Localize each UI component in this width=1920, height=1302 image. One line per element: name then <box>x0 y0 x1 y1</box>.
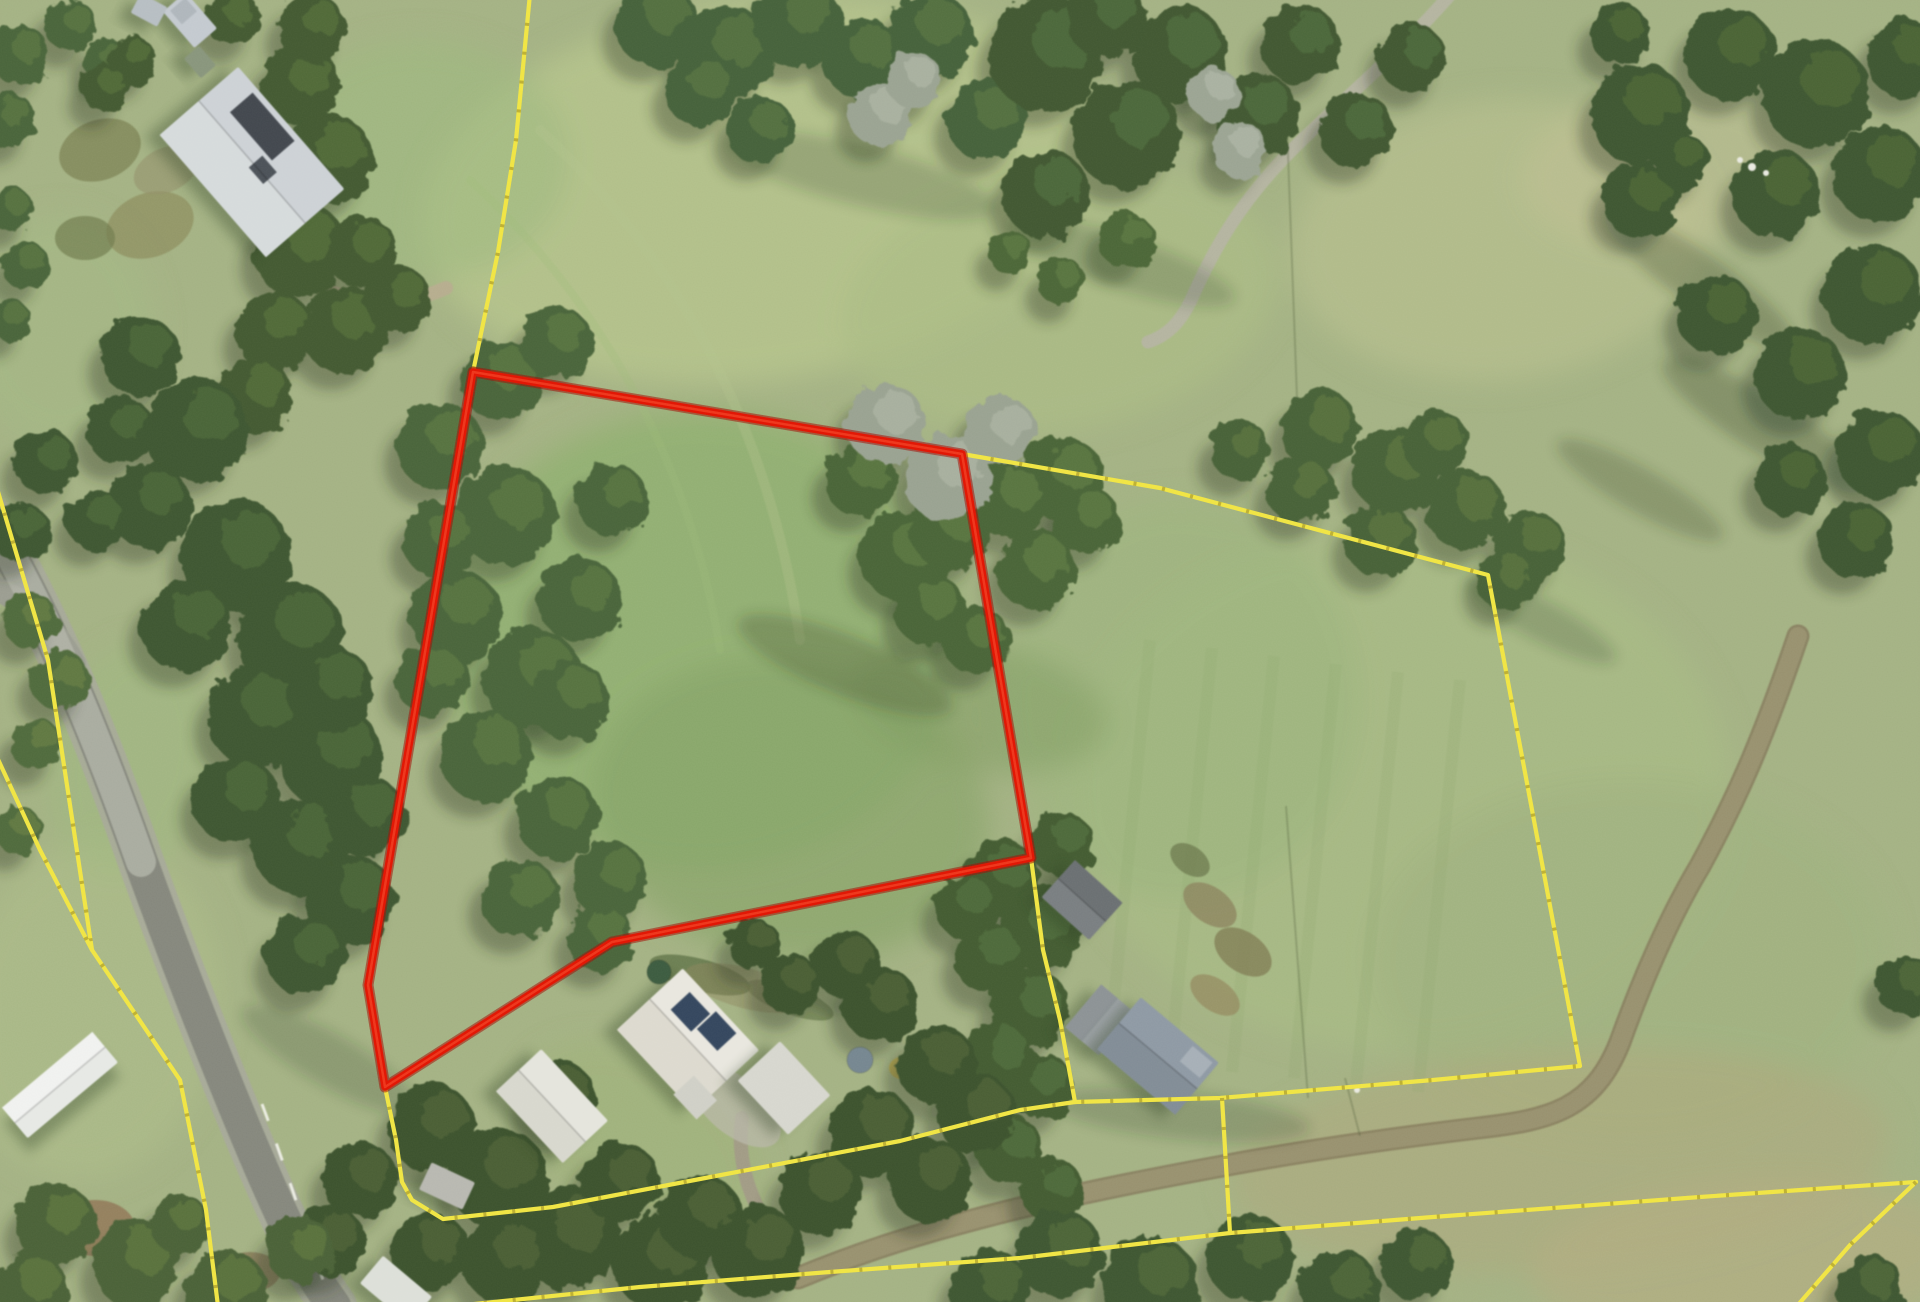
tree-canopy-lit <box>139 472 183 516</box>
white-dot <box>1748 163 1756 171</box>
tree-canopy-lit <box>782 959 813 990</box>
tree-canopy-lit <box>316 122 364 170</box>
tree-canopy-lit <box>1627 73 1679 125</box>
tree-canopy-lit <box>919 1146 963 1190</box>
tree-canopy-lit <box>1788 336 1836 384</box>
tree-canopy-lit <box>215 1258 259 1302</box>
tree-canopy-lit <box>319 654 365 700</box>
tree-canopy-lit <box>746 1214 794 1262</box>
tree-canopy-lit <box>1004 234 1027 257</box>
tree-canopy-lit <box>245 365 285 405</box>
tree-canopy-lit <box>265 299 307 341</box>
tree-canopy-lit <box>485 1137 537 1189</box>
tree-canopy-lit <box>350 1149 390 1189</box>
tree-canopy-lit <box>610 1149 652 1191</box>
tree-canopy-lit <box>1232 425 1263 456</box>
tree-canopy-lit <box>991 402 1028 439</box>
tree-canopy-lit <box>691 60 728 97</box>
tree-canopy-lit <box>182 387 236 441</box>
tree-canopy-lit <box>1498 555 1529 586</box>
tree-canopy-lit <box>751 102 786 137</box>
tree-canopy-lit <box>1330 1257 1372 1299</box>
tree-canopy-lit <box>52 655 83 686</box>
tree-canopy-lit <box>296 923 338 965</box>
tree-canopy-lit <box>276 592 332 648</box>
aerial-photo <box>0 0 1920 1302</box>
garden-patch <box>55 216 115 260</box>
tree-canopy-lit <box>1869 418 1915 464</box>
tree-canopy-lit <box>130 323 172 365</box>
tree-canopy-lit <box>876 391 918 433</box>
tree-canopy-lit <box>172 1199 203 1230</box>
tree-canopy-lit <box>1521 516 1558 553</box>
tree-canopy-lit <box>1 97 30 126</box>
tree-canopy-lit <box>852 25 894 67</box>
tree-canopy-lit <box>126 40 151 65</box>
tree-canopy-lit <box>689 1182 733 1226</box>
tree-canopy-lit <box>600 849 640 889</box>
tree-canopy-lit <box>1859 253 1911 305</box>
tree-canopy-lit <box>1427 416 1462 451</box>
tree-canopy-lit <box>1456 477 1498 519</box>
aerial-map-view[interactable] <box>0 0 1920 1302</box>
tree-canopy-lit <box>1138 1245 1188 1295</box>
tree-canopy-lit <box>1706 281 1748 323</box>
tree-canopy-lit <box>221 510 279 568</box>
tree-canopy-lit <box>1054 818 1087 851</box>
tree-canopy-lit <box>1612 9 1643 40</box>
tree-canopy-lit <box>111 402 146 437</box>
tree-canopy-lit <box>907 57 936 86</box>
tree-canopy-lit <box>46 1191 88 1233</box>
tree-canopy-lit <box>1026 537 1068 579</box>
tree-canopy-lit <box>1000 469 1040 509</box>
tree-canopy-lit <box>1112 90 1168 146</box>
white-dot <box>1763 170 1769 176</box>
tree-canopy-lit <box>291 1222 326 1257</box>
tree-canopy-lit <box>1846 509 1886 549</box>
tree-canopy-lit <box>174 588 222 636</box>
tree-canopy-lit <box>547 784 591 828</box>
white-dot <box>1737 157 1743 163</box>
tree-canopy-lit <box>1044 1164 1077 1197</box>
tree-canopy-lit <box>1077 492 1112 527</box>
tree-canopy-lit <box>926 1031 968 1073</box>
tree-canopy-lit <box>12 30 43 61</box>
tree-canopy-lit <box>474 718 522 766</box>
tree-canopy-lit <box>1207 73 1234 100</box>
tree-canopy-lit <box>560 667 602 709</box>
tree-canopy-lit <box>1168 15 1218 65</box>
tree-canopy-lit <box>1371 510 1408 547</box>
tree-canopy-lit <box>1245 80 1289 124</box>
tree-canopy-lit <box>303 0 338 35</box>
tree-canopy-lit <box>603 470 640 507</box>
tree-canopy-lit <box>1781 450 1818 487</box>
tree-canopy-lit <box>1861 1260 1896 1295</box>
tree-canopy-lit <box>88 495 119 526</box>
gray-dome-tank <box>847 1047 873 1073</box>
tree-canopy-lit <box>1233 127 1262 156</box>
tree-canopy-lit <box>1051 444 1095 488</box>
tree-canopy-lit <box>29 723 56 750</box>
tree-canopy-lit <box>958 880 991 913</box>
photo-layers <box>0 0 1920 1302</box>
tree-canopy-lit <box>981 928 1018 965</box>
tree-canopy-lit <box>1291 462 1326 497</box>
tree-canopy-lit <box>1056 262 1081 287</box>
tree-canopy-lit <box>1049 1218 1095 1264</box>
tree-canopy-lit <box>1403 30 1438 65</box>
tree-canopy-lit <box>919 0 965 46</box>
tree-canopy-lit <box>38 436 71 469</box>
tree-canopy-lit <box>1718 16 1766 64</box>
tree-canopy-lit <box>421 1092 467 1138</box>
tree-canopy-lit <box>1802 50 1858 106</box>
tree-canopy-lit <box>493 475 545 527</box>
tree-canopy-lit <box>1290 11 1332 53</box>
tree-canopy-lit <box>6 192 29 215</box>
tree-canopy-lit <box>921 580 958 617</box>
tree-canopy-lit <box>510 865 552 907</box>
tree-canopy-lit <box>1868 135 1918 185</box>
green-water-tank <box>647 960 671 984</box>
tree-canopy-lit <box>1035 158 1081 204</box>
tree-canopy-lit <box>495 1224 541 1270</box>
tree-canopy-lit <box>225 764 271 810</box>
tree-canopy-lit <box>1346 99 1386 139</box>
tree-canopy-lit <box>1031 1058 1066 1093</box>
tree-canopy-lit <box>444 578 492 626</box>
tree-canopy-lit <box>747 923 774 950</box>
tree-canopy-lit <box>1310 397 1352 439</box>
tree-canopy-lit <box>1407 1234 1444 1271</box>
tree-canopy-lit <box>837 936 872 971</box>
tree-canopy-lit <box>19 245 44 270</box>
tree-canopy-lit <box>389 272 424 307</box>
tree-canopy-lit <box>353 222 390 259</box>
tree-canopy-lit <box>1765 158 1811 204</box>
tree-canopy-lit <box>569 566 613 610</box>
tree-canopy-lit <box>20 1259 60 1299</box>
tree-canopy-lit <box>2 302 25 325</box>
tree-canopy-lit <box>980 1257 1022 1299</box>
tree-canopy-lit <box>99 68 124 93</box>
tree-canopy-lit <box>547 312 584 349</box>
tree-canopy-lit <box>63 4 90 31</box>
tree-canopy-lit <box>861 1096 907 1142</box>
tree-canopy-lit <box>1119 217 1148 246</box>
tree-canopy-lit <box>1673 137 1702 166</box>
tree-canopy-lit <box>12 507 43 538</box>
tree-canopy-lit <box>420 1219 462 1261</box>
